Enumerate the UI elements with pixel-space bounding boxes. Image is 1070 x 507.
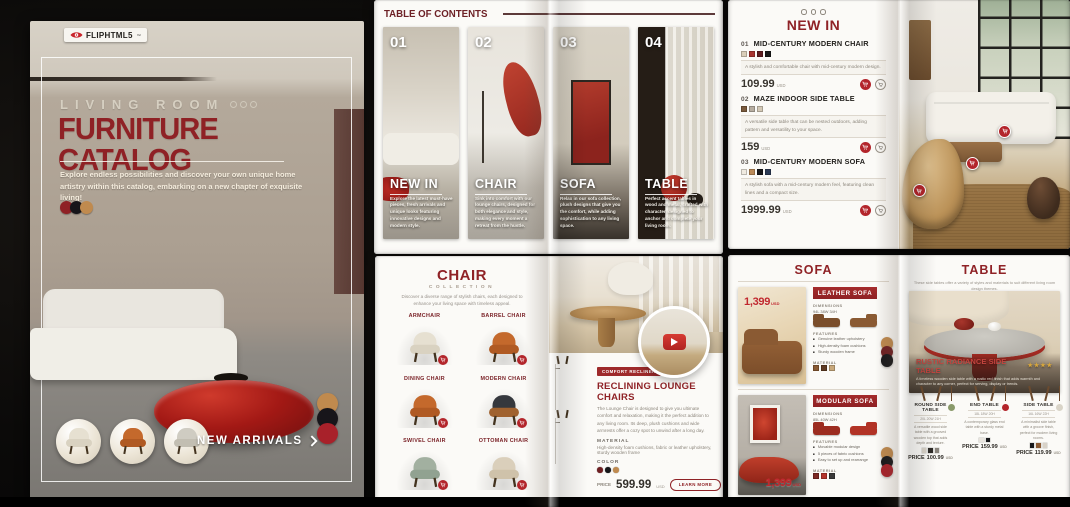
table-card-round[interactable]: ROUND SIDE TABLE 20L 20W 21H A versatile… [908,401,953,502]
eyebrow-text: LIVING ROOM [60,97,224,112]
cart-icon[interactable] [860,205,871,216]
price-overlay: 1,399USD [766,473,801,491]
feature-description: The Lounge Chair is designed to give you… [597,405,713,434]
feature-line: Sturdy wooden frame [813,349,877,356]
table-page[interactable]: TABLE These side tables offer a variety … [899,255,1070,507]
price-currency: USD [761,146,770,153]
toc-label: TABLE [645,177,688,191]
price-value: 159 [741,141,759,153]
toc-spread[interactable]: TABLE OF CONTENTS 01 NEW IN Explore the … [374,0,723,254]
chair-thumbnails [56,419,209,464]
cart-icon[interactable] [860,142,871,153]
recliner-feature-page[interactable]: COMFORT RECLINER RECLINING LOUNGE CHAIRS… [549,256,723,507]
cover-sofa-seat [30,328,237,381]
toc-number: 01 [390,34,407,51]
video-play-icon[interactable] [663,334,686,350]
toc-header-rule [503,13,715,15]
price-value: 100.99 [927,455,944,461]
color-palette-dots [60,201,90,214]
chair-cell-barrel[interactable]: BARREL CHAIR [470,313,537,376]
new-in-list: 01 MID-CENTURY MODERN CHAIR A stylish an… [741,39,886,220]
price-row: 159 USD [741,141,886,153]
price-label: PRICE [597,482,611,487]
fliphtml5-eye-icon [70,31,83,39]
toc-header: TABLE OF CONTENTS [384,8,715,20]
chair-thumbnail-2[interactable] [110,419,155,464]
table-title: TABLE [899,263,1070,277]
swatch-row [741,51,886,57]
cart-icon[interactable] [517,480,527,490]
modular-sofa-photo[interactable]: 1,399USD [738,395,806,495]
chair-subtitle: COLLECTION [375,285,549,290]
featured-table-description: A timeless wooden side table with a rust… [916,377,1053,388]
toc-grid: 01 NEW IN Explore the latest must-have p… [383,27,714,239]
living-room-photo [899,0,1070,249]
swatch-row [962,438,1007,443]
product-hotspot-chair[interactable] [913,184,926,197]
ellipsis-dots-icon [230,101,257,108]
sofa-shape-icons [813,318,877,327]
product-description: A contemporary glass end table with a st… [964,420,1005,436]
cart-icon[interactable] [438,355,448,365]
price-row: PRICE 119.99 USD [1016,450,1061,456]
price-value: 1999.99 [741,204,781,216]
cart-icon[interactable] [860,79,871,90]
chair-dimension-figure [555,364,591,410]
product-number: 03 [741,159,749,166]
chevron-right-icon [306,436,317,447]
toc-card-sofa[interactable]: 03 SOFA Relax in our sofa collection, pl… [553,27,629,239]
leather-sofa-photo[interactable]: 1,399USD [738,287,806,384]
feature-line: Movable modular design [813,444,877,451]
price-row: PRICE 159.99 USD [962,444,1007,450]
white-chair-shape [608,262,653,295]
color-dots [881,451,894,477]
product-info: MODULAR SOFA DIMENSIONS 85L 40W 42H FEAT… [813,395,893,495]
sofa-product-leather: 1,399USD LEATHER SOFA DIMENSIONS 94L 38W… [738,287,893,384]
dimensions-value: 16L 16W 22H [1022,410,1055,418]
price-row: PRICE 599.99 USD LEARN MORE BUY NOW [597,479,713,491]
price-row: 109.99 USD [741,78,886,90]
product-description: A versatile side table that can be neste… [741,115,886,138]
chair-collection-page[interactable]: CHAIR COLLECTION Discover a diverse rang… [375,256,549,507]
sofa-table-spread[interactable]: SOFA 1,399USD LEATHER SOFA DIMENSIONS 94… [728,255,1070,507]
dimensions-label: DIMENSIONS [813,303,877,308]
cart-outline-icon[interactable] [875,205,886,216]
product-name: MID-CENTURY MODERN CHAIR [754,39,869,48]
cover-eyebrow: LIVING ROOM [60,97,257,112]
catalog-cover-page[interactable]: FLIPHTML5™ LIVING ROOM FURNITURE CATALOG… [30,21,364,500]
swatch-row [908,448,953,453]
toc-desc: Perfect accent tables in wood and metal,… [645,196,709,230]
cart-outline-icon[interactable] [875,79,886,90]
product-name: MID-CENTURY MODERN SOFA [754,157,866,166]
new-in-spread[interactable]: NEW IN 01 MID-CENTURY MODERN CHAIR A sty… [728,0,1070,249]
list-item: 03 MID-CENTURY MODERN SOFA A stylish sof… [741,157,886,216]
price-currency: USD [783,209,792,216]
dimensions-label: DIMENSIONS [813,411,877,416]
price-currency: USD [1000,445,1007,449]
list-item: 01 MID-CENTURY MODERN CHAIR A stylish an… [741,39,886,90]
toc-number: 03 [560,34,577,51]
swatch-row [1016,443,1061,448]
toc-card-table[interactable]: 04 TABLE Perfect accent tables in wood a… [638,27,714,239]
dimension-diagrams [555,364,591,472]
product-description: A stylish sofa with a mid-century modern… [741,178,886,201]
brand-name: FLIPHTML5 [86,31,133,40]
new-in-page[interactable]: NEW IN 01 MID-CENTURY MODERN CHAIR A sty… [728,0,899,249]
toc-number: 04 [645,34,662,51]
product-hotspot-sofa[interactable] [998,125,1011,138]
cart-icon[interactable] [517,418,527,428]
cart-icon[interactable] [438,480,448,490]
table-card-end[interactable]: END TABLE 18L 18W 20H A contemporary gla… [962,401,1007,502]
product-name-row: 03 MID-CENTURY MODERN SOFA [741,157,886,166]
product-banner: LEATHER SOFA [813,287,877,299]
toc-label: CHAIR [475,177,517,191]
price-currency: USD [1054,451,1061,455]
wing-chair-figure [174,428,200,454]
chair-description: Discover a diverse range of stylish chai… [398,293,527,307]
product-info: LEATHER SOFA DIMENSIONS 94L 38W 34H FEAT… [813,287,893,384]
toc-card-chair[interactable]: 02 CHAIR Sink into comfort with our loun… [468,27,544,239]
new-in-photo-page[interactable] [899,0,1070,249]
product-description: A versatile wood side table with a groov… [910,425,951,446]
ceiling-beam [30,77,217,81]
wall-art [909,20,931,80]
bowl-side-table [1027,177,1059,219]
dimensions-value: 18L 18W 20H [968,410,1001,418]
star-rating: ★★★★ [1027,362,1053,369]
title-divider [60,161,284,162]
table-grid: ROUND SIDE TABLE 20L 20W 21H A versatile… [908,401,1061,502]
wood-table-base [598,318,615,347]
new-in-title: NEW IN [728,17,899,33]
product-hotspot-table[interactable] [966,157,979,170]
price-row: 1999.99 USD [741,204,886,216]
dimensions-value: 20L 20W 21H [914,415,947,423]
feature-product-name: RECLINING LOUNGE CHAIRS [597,381,713,403]
cover-title: FURNITURE CATALOG [58,113,346,175]
cart-icon[interactable] [438,418,448,428]
new-arrivals-label: NEW ARRIVALS [197,435,303,447]
cover-subtitle: Explore endless possibilities and discov… [60,169,312,204]
product-number: 01 [741,41,749,48]
toc-card-new-in[interactable]: 01 NEW IN Explore the latest must-have p… [383,27,459,239]
chair-title: CHAIR [375,267,549,284]
price-row: PRICE 100.99 USD [908,455,953,461]
material-label: MATERIAL [597,439,713,444]
toc-desc: Explore the latest must-have pieces, fre… [390,196,454,230]
feature-line: Genuine leather upholstery [813,336,877,343]
side-palette-dots [317,399,338,444]
price-value: 599.99 [616,479,651,491]
toc-desc: Sink into comfort with our lounge chairs… [475,196,539,230]
learn-more-button[interactable]: LEARN MORE [670,479,722,491]
flipbook-stage: FLIPHTML5™ LIVING ROOM FURNITURE CATALOG… [0,0,1070,507]
fliphtml5-logo[interactable]: FLIPHTML5™ [64,28,147,42]
swatch-row [741,169,886,175]
new-arrivals-link[interactable]: NEW ARRIVALS [197,435,316,447]
featured-table-caption: RUSTIC RADIANCE SIDE TABLE ★★★★ A timele… [909,353,1060,393]
swatch-row [741,106,886,112]
chair-cell-dining[interactable]: DINING CHAIR [391,376,458,439]
feature-line: High-density foam cushions [813,343,877,350]
feature-line: 5 pieces of fabric cushions [813,451,877,458]
chair-cell-swivel[interactable]: SWIVEL CHAIR [391,438,458,501]
toc-label: NEW IN [390,177,438,191]
sofa-title: SOFA [728,263,899,277]
price-currency: USD [656,484,664,491]
rattan-chair [902,139,964,229]
toc-desc: Relax in our sofa collection, plush desi… [560,196,624,230]
white-sofa [926,92,1056,144]
price-value: 119.99 [1035,450,1052,456]
product-name: MAZE INDOOR SIDE TABLE [754,94,855,103]
video-thumbnail[interactable] [638,306,710,378]
ellipsis-dots-icon [728,9,899,15]
product-number: 02 [741,96,749,103]
chair-thumbnail-1[interactable] [56,419,101,464]
table-card-side[interactable]: SIDE TABLE 16L 16W 22H A minimalist side… [1016,401,1061,502]
chair-cell-modern[interactable]: MODERN CHAIR [470,376,537,439]
list-item: 02 MAZE INDOOR SIDE TABLE A versatile si… [741,94,886,153]
toc-label: SOFA [560,177,596,191]
chair-spread[interactable]: CHAIR COLLECTION Discover a diverse rang… [375,256,723,507]
color-dots [881,341,894,367]
color-label: COLOR [597,460,713,465]
red-teapot [954,318,974,330]
price-overlay: 1,399USD [744,292,779,310]
chair-cell-armchair[interactable]: ARMCHAIR [391,313,458,376]
table-description: These side tables offer a variety of sty… [911,280,1058,292]
featured-table-photo[interactable]: RUSTIC RADIANCE SIDE TABLE ★★★★ A timele… [909,291,1060,393]
price-value: 109.99 [741,78,775,90]
price-value: 159.99 [981,444,998,450]
cart-icon[interactable] [517,355,527,365]
product-description: A stylish and comfortable chair with mid… [741,60,886,75]
white-teapot [988,322,1002,331]
sofa-shape-icons [813,426,877,435]
sofa-page[interactable]: SOFA 1,399USD LEATHER SOFA DIMENSIONS 94… [728,255,899,507]
product-name-row: 01 MID-CENTURY MODERN CHAIR [741,39,886,48]
price-currency: USD [777,83,786,90]
feature-line: Easy to set up and rearrange [813,457,877,464]
product-name-row: 02 MAZE INDOOR SIDE TABLE [741,94,886,103]
sofa-product-modular: 1,399USD MODULAR SOFA DIMENSIONS 85L 40W… [738,395,893,495]
toc-number: 02 [475,34,492,51]
product-description: A minimalist side table with a groove fi… [1018,420,1059,441]
chair-cell-ottoman[interactable]: OTTOMAN CHAIR [470,438,537,501]
brand-trademark: ™ [137,33,141,38]
armchair-figure [66,428,92,454]
featured-table-name: RUSTIC RADIANCE SIDE TABLE [916,357,1022,375]
recliner-info: COMFORT RECLINER RECLINING LOUNGE CHAIRS… [597,360,713,491]
material-value: High-density foam cushions, fabric or le… [597,445,713,455]
price-currency: USD [946,456,953,460]
barrel-chair-figure [120,428,146,454]
chair-dimension-figure [555,418,591,464]
chair-grid: ARMCHAIR BARREL CHAIR DINING CHAIR MODER… [391,313,537,501]
material-swatches [813,365,877,371]
toc-title: TABLE OF CONTENTS [384,8,487,20]
color-options [597,467,713,473]
material-swatches [813,473,877,479]
product-banner: MODULAR SOFA [813,395,877,407]
cart-outline-icon[interactable] [875,142,886,153]
